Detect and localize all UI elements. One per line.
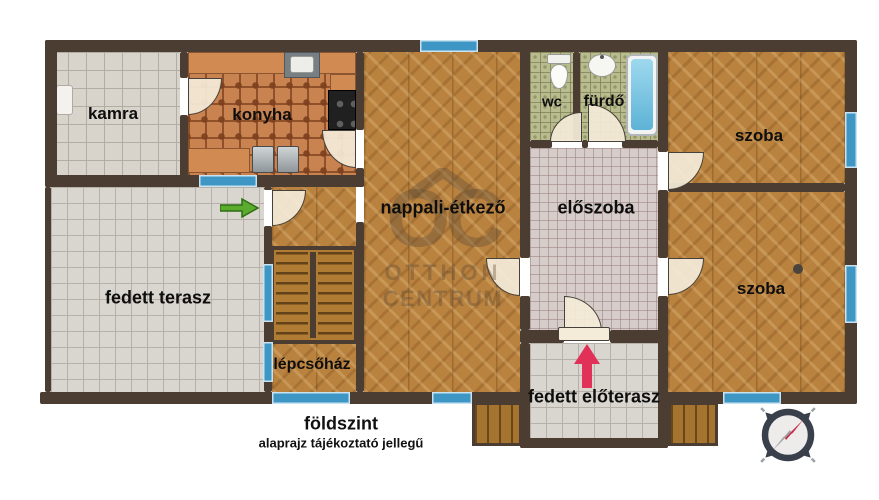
window — [845, 112, 857, 168]
kitchen-counter-bottom — [188, 148, 250, 173]
stair-divider — [310, 252, 316, 338]
wall-segment — [180, 52, 188, 78]
room-label-szoba-also: szoba — [737, 279, 785, 299]
stair-flight-right — [318, 252, 352, 338]
wall-segment — [356, 222, 364, 392]
room-label-konyha: konyha — [232, 105, 292, 125]
disclaimer-caption: alaprajz tájékoztató jellegű — [259, 436, 424, 451]
window — [420, 40, 478, 52]
wall-segment — [530, 140, 552, 148]
window — [263, 264, 273, 322]
wall-segment — [356, 52, 364, 130]
kitchen-counter-top — [188, 52, 356, 74]
wall-segment — [610, 330, 668, 343]
toilet-icon — [547, 54, 571, 64]
faucet-icon — [600, 55, 604, 59]
window — [845, 265, 857, 323]
wall-segment — [180, 115, 188, 177]
watermark-otthon-centrum: OC OTTHON CENTRUM — [368, 168, 518, 312]
compass-rose-icon — [748, 400, 828, 477]
room-label-nappali-etkezo: nappali-étkező — [380, 198, 505, 219]
wall-segment — [520, 40, 530, 258]
wall-segment — [264, 187, 272, 190]
window — [432, 392, 472, 404]
wall-segment — [622, 140, 658, 148]
room-label-fedett-terasz: fedett terasz — [105, 288, 211, 309]
stair-flight-left — [276, 252, 308, 338]
wall-segment — [45, 187, 51, 392]
room-label-furdo: fürdő — [584, 93, 625, 111]
kitchen-sink-basin — [290, 56, 314, 73]
wall-segment — [520, 296, 530, 330]
wall-segment — [45, 40, 57, 187]
wall-segment — [658, 40, 668, 152]
window — [199, 175, 257, 187]
green-right-arrow-icon — [220, 196, 260, 225]
wall-segment — [845, 40, 857, 404]
wall-segment — [520, 438, 668, 448]
watermark-line2: CENTRUM — [368, 286, 518, 312]
entrance-door-leaf — [558, 327, 610, 341]
deck-left — [472, 402, 522, 446]
chimney-dot — [793, 264, 803, 274]
room-label-fedett-eloterasz: fedett előterasz — [528, 387, 660, 408]
watermark-logo: OC — [368, 182, 518, 256]
room-label-eloszoba: előszoba — [557, 198, 634, 219]
room-label-kamra: kamra — [88, 104, 138, 124]
floor-caption: földszint — [304, 414, 378, 435]
wall-segment — [668, 183, 845, 192]
wall-segment — [658, 190, 668, 258]
bathtub-water — [631, 59, 653, 130]
window — [263, 342, 273, 382]
room-label-lepcsohaz: lépcsőház — [273, 356, 350, 374]
room-eloszoba-floor — [530, 148, 658, 330]
window — [272, 392, 350, 404]
stove-icon — [328, 90, 356, 130]
deck-right — [668, 402, 718, 446]
watermark-line1: OTTHON — [368, 260, 518, 286]
appliance-icon — [277, 146, 299, 173]
pantry-cabinet — [56, 85, 73, 115]
appliance-icon — [252, 146, 274, 173]
floor-plan: OC OTTHON CENTRUM kamra konyha nappali — [0, 0, 879, 500]
room-label-wc: wc — [542, 94, 562, 111]
room-label-szoba-felso: szoba — [735, 126, 783, 146]
wall-segment — [356, 168, 364, 187]
